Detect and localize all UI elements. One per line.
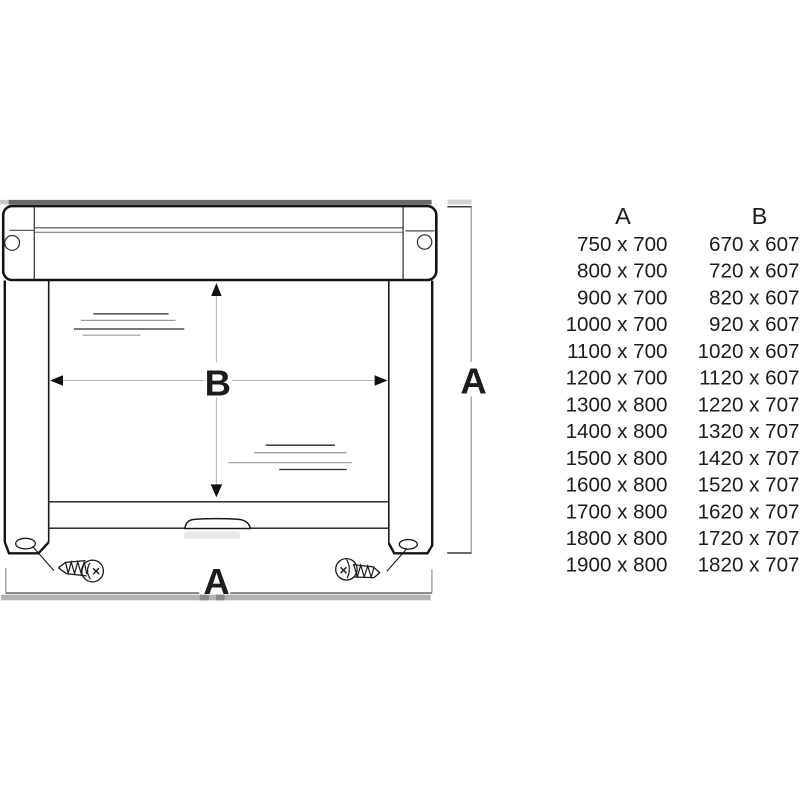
svg-text:1720 x 707: 1720 x 707 [698,527,800,550]
svg-text:1500 x 800: 1500 x 800 [566,447,668,470]
svg-text:1100 x 700: 1100 x 700 [567,340,667,363]
svg-text:800 x 700: 800 x 700 [577,260,667,283]
svg-text:1700 x 800: 1700 x 800 [566,500,668,523]
svg-text:B: B [205,363,231,404]
svg-text:1420 x 707: 1420 x 707 [698,447,800,470]
svg-text:1400 x 800: 1400 x 800 [566,420,668,443]
svg-text:1800 x 800: 1800 x 800 [566,527,668,550]
svg-text:1300 x 800: 1300 x 800 [566,393,668,416]
svg-text:720 x 607: 720 x 607 [709,260,799,283]
svg-text:1220 x 707: 1220 x 707 [698,393,800,416]
svg-text:920 x 607: 920 x 607 [709,313,799,336]
svg-text:820 x 607: 820 x 607 [709,287,799,310]
svg-text:1620 x 707: 1620 x 707 [698,500,800,523]
svg-text:900 x 700: 900 x 700 [577,287,667,310]
svg-text:1520 x 707: 1520 x 707 [698,474,800,497]
svg-text:1320 x 707: 1320 x 707 [698,420,800,443]
svg-text:1200 x 700: 1200 x 700 [566,367,668,390]
svg-text:A: A [460,360,486,401]
svg-text:1600 x 800: 1600 x 800 [566,474,668,497]
svg-text:750 x 700: 750 x 700 [577,233,667,256]
svg-text:670 x 607: 670 x 607 [709,233,799,256]
svg-text:1120 x 607: 1120 x 607 [699,367,799,390]
svg-text:1900 x 800: 1900 x 800 [566,554,668,577]
svg-text:1020 x 607: 1020 x 607 [698,340,800,363]
svg-text:1000 x 700: 1000 x 700 [566,313,668,336]
svg-text:A: A [615,203,631,229]
svg-text:1820 x 707: 1820 x 707 [698,554,800,577]
svg-text:B: B [752,203,768,229]
